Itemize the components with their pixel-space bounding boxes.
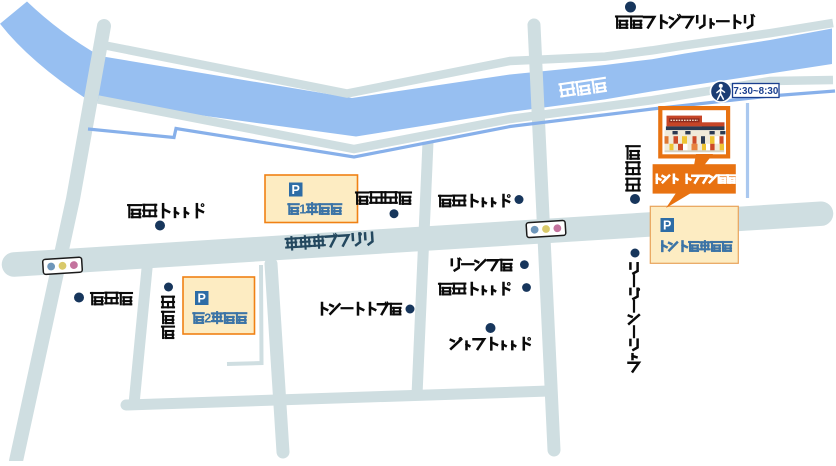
svg-text:1: 1 — [299, 203, 306, 217]
svg-text:P: P — [198, 292, 206, 306]
svg-text:7:30~8:30: 7:30~8:30 — [733, 86, 778, 97]
svg-text:2: 2 — [204, 312, 211, 326]
svg-text:P: P — [663, 219, 671, 233]
svg-text:P: P — [292, 183, 300, 197]
